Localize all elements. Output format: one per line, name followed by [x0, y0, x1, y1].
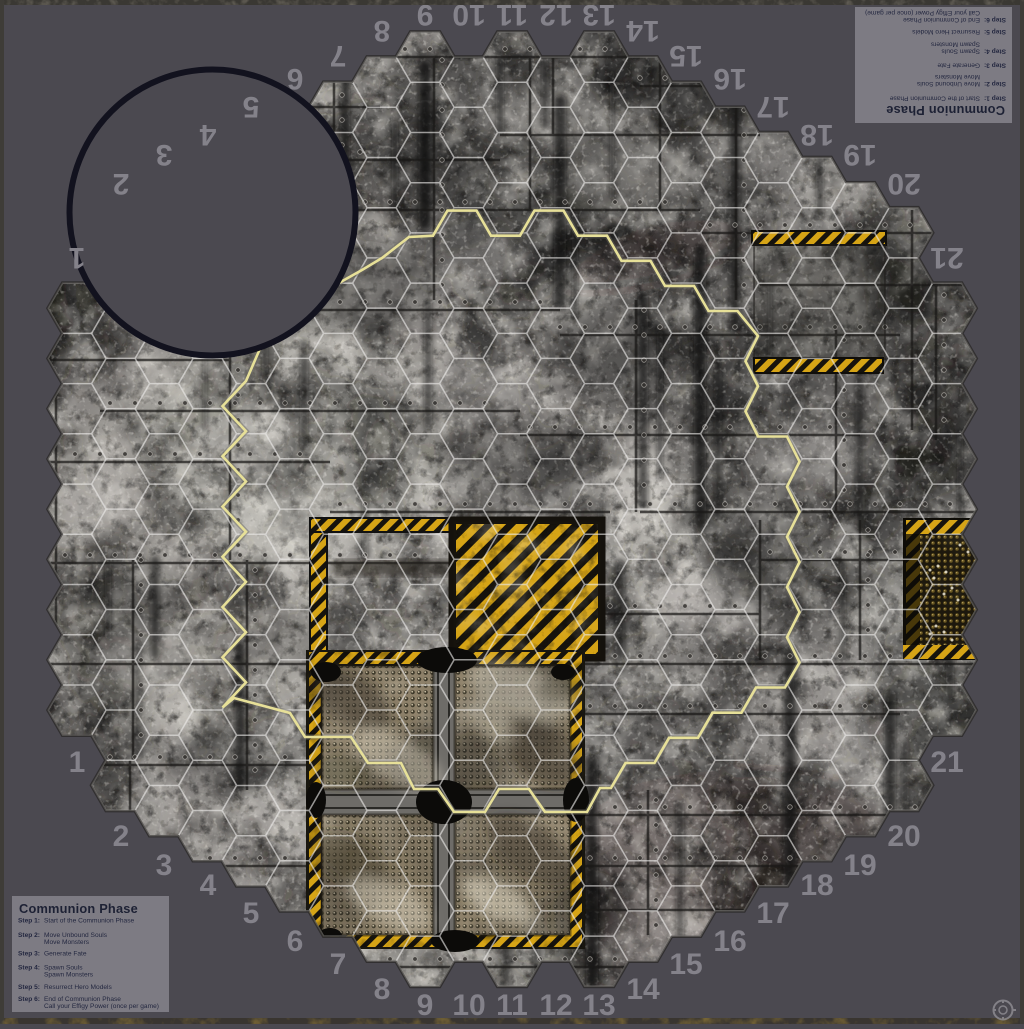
- svg-text:Step 1:: Step 1:: [984, 95, 1006, 102]
- svg-text:Communion Phase: Communion Phase: [886, 103, 1005, 118]
- svg-text:Move Unbound Souls: Move Unbound Souls: [916, 80, 980, 87]
- svg-text:Start of the Communion Phase: Start of the Communion Phase: [44, 918, 134, 925]
- svg-text:Move Monsters: Move Monsters: [934, 73, 980, 80]
- svg-text:Spawn Monsters: Spawn Monsters: [44, 972, 94, 979]
- svg-text:Step 6:: Step 6:: [18, 996, 40, 1003]
- svg-text:16: 16: [713, 925, 746, 958]
- svg-text:15: 15: [669, 39, 702, 72]
- svg-text:Resurrect Hero Models: Resurrect Hero Models: [44, 984, 112, 991]
- svg-text:End of Communion Phase: End of Communion Phase: [44, 996, 121, 1003]
- svg-text:Call your Effigy Power (once p: Call your Effigy Power (once per game): [865, 9, 980, 16]
- svg-text:14: 14: [626, 973, 660, 1006]
- svg-text:9: 9: [417, 989, 434, 1022]
- svg-text:Communion Phase: Communion Phase: [19, 901, 138, 916]
- svg-text:2: 2: [113, 820, 130, 853]
- svg-text:17: 17: [756, 897, 789, 930]
- svg-text:16: 16: [713, 62, 746, 95]
- svg-text:18: 18: [800, 869, 833, 902]
- svg-text:Step 3:: Step 3:: [984, 62, 1006, 69]
- svg-text:Spawn Souls: Spawn Souls: [941, 48, 980, 55]
- svg-text:20: 20: [887, 167, 920, 200]
- svg-text:1: 1: [69, 241, 86, 274]
- svg-text:3: 3: [156, 849, 173, 882]
- svg-text:Step 4:: Step 4:: [984, 48, 1006, 55]
- svg-text:Step 3:: Step 3:: [18, 951, 40, 958]
- svg-text:Spawn Souls: Spawn Souls: [44, 965, 83, 972]
- svg-text:18: 18: [800, 118, 833, 151]
- svg-text:3: 3: [156, 138, 173, 171]
- svg-text:4: 4: [200, 869, 217, 902]
- svg-text:5: 5: [243, 90, 260, 123]
- svg-text:19: 19: [843, 138, 876, 171]
- svg-text:Step 5:: Step 5:: [18, 984, 40, 991]
- svg-text:Generate Fate: Generate Fate: [44, 951, 87, 958]
- svg-text:8: 8: [374, 14, 391, 47]
- svg-text:10: 10: [452, 989, 485, 1022]
- svg-text:21: 21: [930, 241, 963, 274]
- svg-text:12: 12: [539, 989, 572, 1022]
- svg-text:Move Unbound Souls: Move Unbound Souls: [44, 932, 108, 939]
- svg-text:5: 5: [243, 897, 260, 930]
- svg-text:Spawn Monsters: Spawn Monsters: [930, 40, 980, 47]
- svg-text:7: 7: [330, 948, 347, 981]
- svg-text:Resurrect Hero Models: Resurrect Hero Models: [912, 28, 980, 35]
- svg-text:Step 5:: Step 5:: [984, 28, 1006, 35]
- svg-text:4: 4: [199, 118, 216, 151]
- svg-text:Start of the Communion Phase: Start of the Communion Phase: [890, 95, 980, 102]
- svg-text:Step 1:: Step 1:: [18, 918, 40, 925]
- svg-text:14: 14: [626, 14, 660, 47]
- svg-text:21: 21: [930, 746, 963, 779]
- svg-text:Call your Effigy Power (once p: Call your Effigy Power (once per game): [44, 1003, 159, 1010]
- svg-text:1: 1: [69, 746, 86, 779]
- svg-text:Step 2:: Step 2:: [18, 932, 40, 939]
- svg-text:19: 19: [843, 849, 876, 882]
- svg-text:Move Monsters: Move Monsters: [44, 939, 90, 946]
- svg-text:6: 6: [287, 62, 304, 95]
- svg-text:Step 2:: Step 2:: [984, 80, 1006, 87]
- svg-text:17: 17: [756, 90, 789, 123]
- svg-text:8: 8: [374, 973, 391, 1006]
- svg-text:2: 2: [113, 167, 130, 200]
- svg-text:End of Communion Phase: End of Communion Phase: [903, 16, 980, 23]
- svg-text:20: 20: [887, 820, 920, 853]
- svg-text:Step 6:: Step 6:: [984, 16, 1006, 23]
- svg-text:7: 7: [330, 39, 347, 72]
- svg-text:Generate Fate: Generate Fate: [937, 62, 980, 69]
- svg-text:Step 4:: Step 4:: [18, 965, 40, 972]
- svg-text:13: 13: [582, 989, 615, 1022]
- svg-text:15: 15: [669, 948, 702, 981]
- svg-text:6: 6: [287, 925, 304, 958]
- svg-text:11: 11: [496, 989, 528, 1022]
